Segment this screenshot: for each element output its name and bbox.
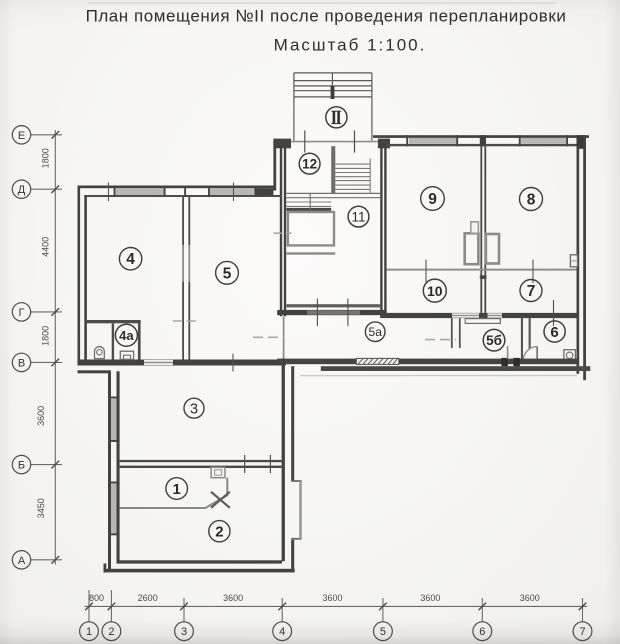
svg-text:5: 5 [223,265,232,282]
svg-text:6: 6 [479,626,485,638]
svg-text:9: 9 [428,191,437,208]
svg-text:7: 7 [579,626,585,638]
svg-text:3600: 3600 [322,593,342,603]
svg-text:План помещения №II после прове: План помещения №II после проведения пере… [86,7,567,26]
svg-text:3600: 3600 [520,593,540,603]
svg-text:3: 3 [190,401,198,417]
svg-text:11: 11 [351,209,365,224]
svg-text:4400: 4400 [41,237,51,257]
svg-text:Б: Б [18,460,25,472]
svg-text:800: 800 [89,593,104,603]
svg-text:5б: 5б [486,333,502,348]
svg-text:Г: Г [19,307,25,319]
svg-text:3600: 3600 [420,593,440,603]
svg-text:3600: 3600 [36,406,46,426]
svg-text:Масштаб 1:100.: Масштаб 1:100. [274,36,427,55]
svg-text:6: 6 [550,324,558,341]
svg-text:2: 2 [215,524,223,541]
svg-text:3600: 3600 [223,593,243,603]
svg-text:5а: 5а [369,325,383,339]
svg-text:1: 1 [173,481,181,498]
svg-text:10: 10 [427,283,443,299]
svg-text:4: 4 [279,626,285,638]
svg-text:2600: 2600 [138,593,158,603]
svg-text:Е: Е [18,130,25,142]
svg-text:1: 1 [86,626,92,638]
svg-text:1800: 1800 [41,326,51,346]
svg-text:4а: 4а [119,328,134,343]
svg-text:12: 12 [302,157,317,172]
svg-text:4: 4 [126,251,135,268]
svg-text:3: 3 [181,626,187,638]
svg-text:Д: Д [18,184,26,196]
svg-text:В: В [18,357,25,369]
svg-text:А: А [18,555,26,567]
svg-text:8: 8 [527,192,536,209]
svg-text:1800: 1800 [41,148,51,168]
svg-text:7: 7 [527,283,536,300]
svg-text:2: 2 [108,626,114,638]
svg-text:3450: 3450 [36,498,46,518]
svg-text:5: 5 [380,626,386,638]
